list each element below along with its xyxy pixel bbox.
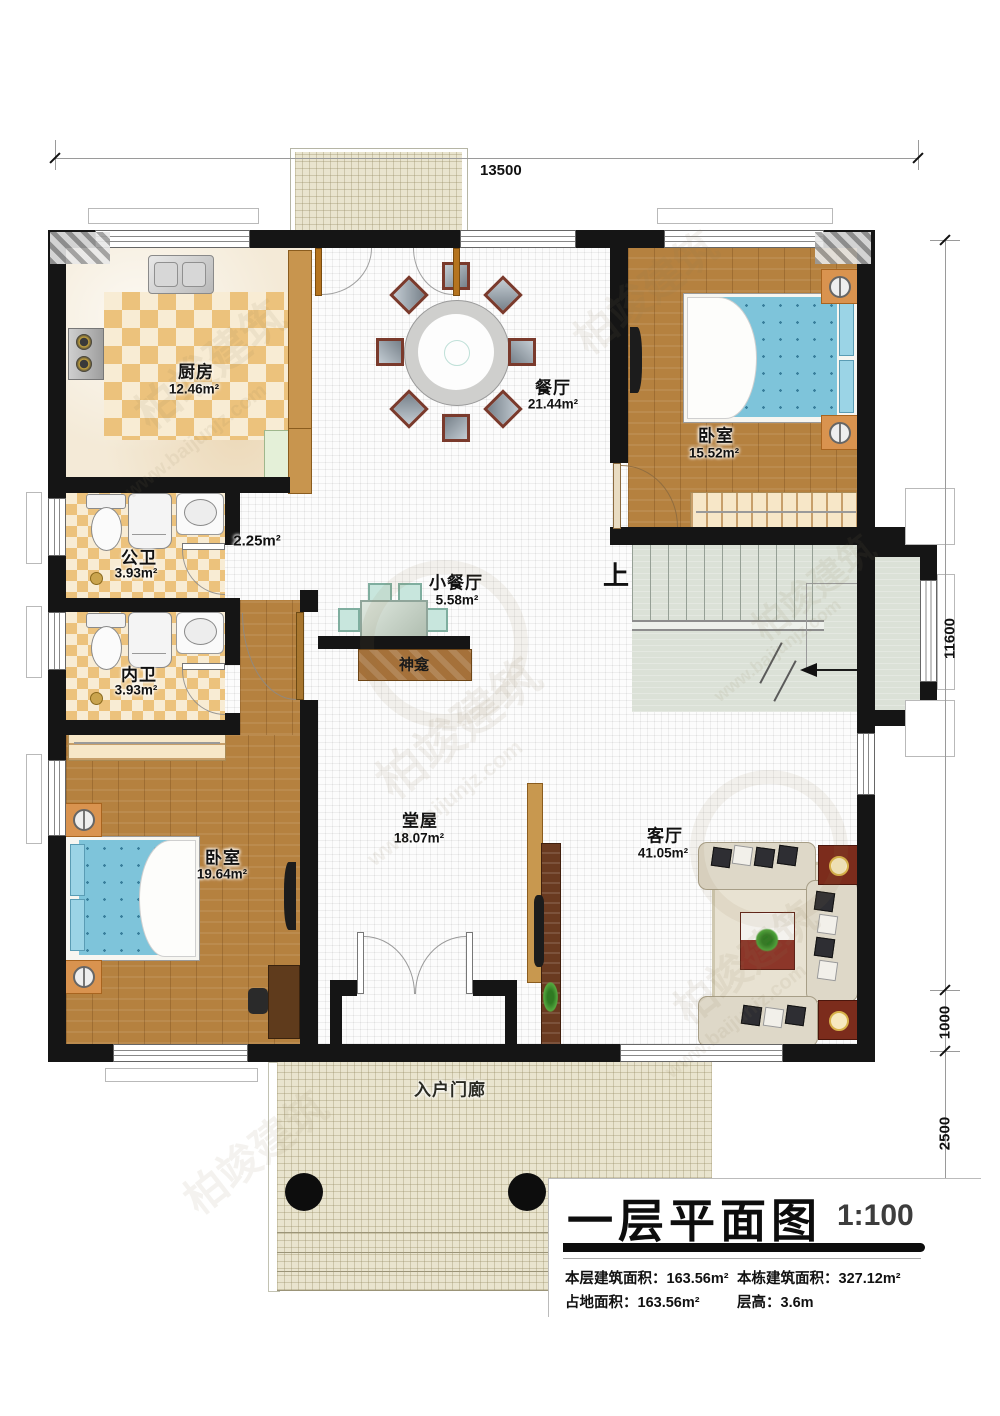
terrace-door-leaf xyxy=(315,248,322,296)
room-area-bedroom2: 19.64m² xyxy=(197,867,247,882)
public-bath-window xyxy=(48,498,66,556)
public-bath-door-leaf xyxy=(182,543,225,550)
room-area-bedroom1: 15.52m² xyxy=(689,446,739,461)
stat-land-area: 占地面积：163.56m² xyxy=(565,1291,700,1312)
room-label-dining: 餐厅 xyxy=(535,374,571,399)
toilet-bowl xyxy=(91,507,122,551)
partition-plant xyxy=(543,982,558,1012)
bedroom2-pillow xyxy=(70,899,85,951)
room-area-public-bath: 3.93m² xyxy=(115,566,158,581)
sofa-pillow xyxy=(711,847,732,868)
sofa-pillow xyxy=(741,1005,762,1026)
bedroom1-pillow xyxy=(839,303,854,356)
sofa-pillow xyxy=(817,914,838,935)
bedroom1-blanket xyxy=(687,297,757,419)
room-area-private-bath: 3.93m² xyxy=(115,683,158,698)
private-bath-door-leaf xyxy=(182,663,225,670)
bedroom1-window xyxy=(664,230,824,248)
dining-chair xyxy=(376,338,404,366)
dining-chair xyxy=(508,338,536,366)
bedroom2-desk-chair xyxy=(248,988,268,1014)
stat-value: 163.56m² xyxy=(667,1271,729,1287)
room-label-bedroom1: 卧室 xyxy=(698,422,734,447)
bedroom2-tv xyxy=(284,862,296,930)
wall-right xyxy=(857,230,875,1062)
stat-value: 327.12m² xyxy=(839,1271,901,1287)
sofa-pillow xyxy=(732,845,753,866)
window-sill xyxy=(905,700,955,757)
kitchen-counter xyxy=(288,250,312,430)
kitchen-sink-basin xyxy=(182,262,206,287)
stat-building-area: 本栋建筑面积：327.12m² xyxy=(737,1267,901,1288)
shrine-label: 神龛 xyxy=(399,654,429,675)
wall-bedroom2-top xyxy=(48,720,240,735)
room-area-hallway: 2.25m² xyxy=(233,533,281,550)
bedroom2-south-window xyxy=(113,1044,248,1062)
stat-label: 本层建筑面积： xyxy=(565,1271,667,1287)
window-sill xyxy=(905,488,955,545)
wall-bedroom1-left xyxy=(610,230,628,463)
porch-column xyxy=(508,1173,546,1211)
plan-scale: 1:100 xyxy=(837,1199,914,1233)
dim-right-upper: 11600 xyxy=(942,614,959,664)
washing-machine-line xyxy=(132,653,166,654)
sofa-pillow xyxy=(817,960,838,981)
floor-drain xyxy=(90,572,103,585)
room-label-kitchen: 厨房 xyxy=(178,358,214,383)
room-label-bedroom2: 卧室 xyxy=(205,844,241,869)
room-label-main-hall: 堂屋 xyxy=(402,807,438,832)
bedroom1-wardrobe xyxy=(690,492,862,529)
living-south-window xyxy=(620,1044,783,1062)
bedroom2-blanket xyxy=(139,840,196,957)
dim-top-value: 13500 xyxy=(480,162,522,179)
stair-treads xyxy=(632,545,828,625)
wall-entry-left-h xyxy=(330,980,357,996)
window-sill xyxy=(657,208,833,224)
kitchen-sink-basin xyxy=(154,262,178,287)
floor-drain xyxy=(90,692,103,705)
side-table-lamp xyxy=(829,1011,849,1031)
bedroom1-tv xyxy=(630,327,642,393)
bedroom1-nightstand xyxy=(821,269,858,304)
sofa-pillow xyxy=(814,891,835,912)
wall-bedroom2-right-b xyxy=(300,700,318,1044)
dim-right-mid: 1000 xyxy=(937,1003,954,1043)
stair-direction-arrowhead xyxy=(800,663,817,677)
window-sill xyxy=(26,606,42,678)
stair-bay-floor xyxy=(875,557,922,712)
wall-bedroom1-bottom xyxy=(610,527,937,545)
bedroom2-door-leaf xyxy=(296,612,304,700)
living-east-window xyxy=(857,733,875,795)
bedroom1-door-leaf xyxy=(613,463,621,529)
room-area-kitchen: 12.46m² xyxy=(169,382,219,397)
title-underline-thin xyxy=(563,1258,921,1259)
sofa-pillow xyxy=(814,937,835,958)
porch-column xyxy=(285,1173,323,1211)
bedroom2-nightstand xyxy=(65,960,102,994)
stat-value: 163.56m² xyxy=(638,1295,700,1311)
porch-label: 入户门廊 xyxy=(414,1076,486,1101)
window-sill xyxy=(105,1068,258,1082)
window-sill xyxy=(88,208,259,224)
sofa-pillow xyxy=(777,845,798,866)
stat-label: 占地面积： xyxy=(565,1295,638,1311)
stat-label: 层高： xyxy=(737,1295,781,1311)
window-sill xyxy=(26,492,42,564)
room-area-living: 41.05m² xyxy=(638,846,688,861)
bedroom2-window xyxy=(48,760,66,836)
stat-value: 3.6m xyxy=(781,1295,814,1311)
shrine-back-wall xyxy=(318,636,470,649)
room-area-main-hall: 18.07m² xyxy=(394,831,444,846)
washing-machine-line xyxy=(132,534,166,535)
side-table-lamp xyxy=(829,856,849,876)
bedroom2-pillow xyxy=(70,844,85,896)
stat-floor-height: 层高：3.6m xyxy=(737,1291,814,1312)
kitchen-cabinet xyxy=(288,428,312,494)
sofa-pillow xyxy=(754,847,775,868)
dim-line-right xyxy=(945,240,946,1213)
title-block: 一层平面图 1:100 本层建筑面积：163.56m² 本栋建筑面积：327.1… xyxy=(548,1178,981,1317)
room-label-living: 客厅 xyxy=(647,822,683,847)
bedroom2-nightstand xyxy=(65,803,102,837)
bath-sink xyxy=(184,499,217,526)
coffee-table-plant xyxy=(755,928,779,952)
entry-door-leaf-left xyxy=(357,932,364,994)
toilet-bowl xyxy=(91,626,122,670)
bedroom2-desk xyxy=(268,965,300,1039)
terrace-door2-leaf xyxy=(453,248,460,296)
bedroom1-nightstand xyxy=(821,415,858,450)
room-area-small-dining: 5.58m² xyxy=(436,593,479,608)
room-label-small-dining: 小餐厅 xyxy=(429,569,483,594)
small-dining-chair xyxy=(426,608,448,632)
stove-burner xyxy=(76,334,92,350)
stairs-up-label: 上 xyxy=(603,556,629,593)
corner-hatch xyxy=(815,232,871,264)
tv-partition-dark xyxy=(541,843,561,1045)
corner-hatch xyxy=(50,232,110,264)
window-sill xyxy=(26,754,42,844)
floor-plan-canvas: 厨房 12.46m² 餐厅 21.44m² 卧室 15.52m² 2.25m² … xyxy=(0,0,1000,1416)
dining-window xyxy=(460,230,576,248)
wall-bath-divider xyxy=(48,598,240,612)
wall-entry-right-v xyxy=(505,980,517,1062)
living-tv xyxy=(534,895,544,967)
entry-door-leaf-right xyxy=(466,932,473,994)
sofa-pillow xyxy=(785,1005,806,1026)
wall-kitchen-bottom xyxy=(48,477,290,493)
dim-right-lower: 2500 xyxy=(937,1114,954,1154)
wall-bedroom2-right-a xyxy=(300,590,318,612)
stove-burner xyxy=(76,356,92,372)
plan-title: 一层平面图 xyxy=(567,1185,822,1251)
stairwell-window xyxy=(920,580,937,682)
stat-floor-area: 本层建筑面积：163.56m² xyxy=(565,1267,729,1288)
washing-machine xyxy=(128,493,172,549)
private-bath-window xyxy=(48,612,66,670)
bedroom1-pillow xyxy=(839,360,854,413)
kitchen-window xyxy=(95,230,250,248)
sofa-pillow xyxy=(763,1007,784,1028)
stair-handrail xyxy=(632,620,824,631)
dining-chair xyxy=(442,414,470,442)
small-dining-chair xyxy=(338,608,360,632)
dim-line-top xyxy=(55,158,918,159)
title-underline-bar xyxy=(563,1243,925,1252)
dining-table-center xyxy=(444,340,470,366)
room-area-dining: 21.44m² xyxy=(528,397,578,412)
terrace-floor xyxy=(295,152,462,232)
stat-label: 本栋建筑面积： xyxy=(737,1271,839,1287)
bath-sink xyxy=(184,618,217,645)
